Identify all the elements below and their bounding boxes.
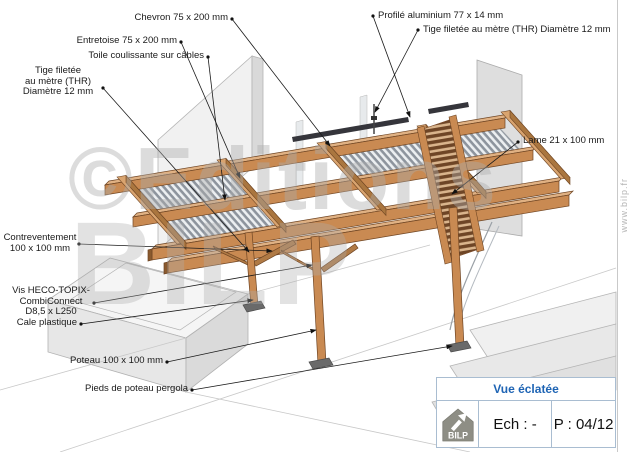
bilp-logo-cell: BILP bbox=[437, 401, 479, 448]
bilp-logo-icon: BILP bbox=[442, 408, 474, 442]
title-block: Vue éclatée BILP Ech : - P : 04/12 bbox=[436, 377, 616, 448]
label-pieds-de-poteau: Pieds de poteau pergola bbox=[74, 384, 188, 395]
label-chevron: Chevron 75 x 200 mm bbox=[126, 13, 228, 24]
label-toile-coulissante: Toile coulissante sur câbles bbox=[72, 51, 204, 62]
label-tige-filetee-left: Tige filetée au mètre (THR) Diamètre 12 … bbox=[16, 66, 100, 98]
watermark-website: www.bilp.fr bbox=[619, 178, 629, 233]
label-vis-heco-topix: Vis HECO-TOPIX- CombiConnect D8,5 x L250 bbox=[8, 286, 94, 318]
label-cale-plastique: Cale plastique bbox=[5, 318, 77, 329]
label-profile-aluminium: Profilé aluminium 77 x 14 mm bbox=[378, 11, 548, 22]
label-poteau: Poteau 100 x 100 mm bbox=[66, 356, 163, 367]
page-border bbox=[617, 0, 618, 452]
scale-value: Ech : - bbox=[479, 401, 552, 448]
view-title: Vue éclatée bbox=[437, 378, 615, 401]
bilp-logo-text: BILP bbox=[447, 430, 467, 440]
label-contreventement: Contreventement 100 x 100 mm bbox=[0, 233, 80, 254]
label-entretoise: Entretoise 75 x 200 mm bbox=[65, 36, 177, 47]
label-tige-filetee-right: Tige filetée au mètre (THR) Diamètre 12 … bbox=[423, 25, 623, 36]
page-number: P : 04/12 bbox=[552, 401, 615, 448]
drawing-page: ©Editions BILP www.bilp.fr Chevron 75 x … bbox=[0, 0, 640, 452]
label-lame: Lame 21 x 100 mm bbox=[523, 136, 619, 147]
